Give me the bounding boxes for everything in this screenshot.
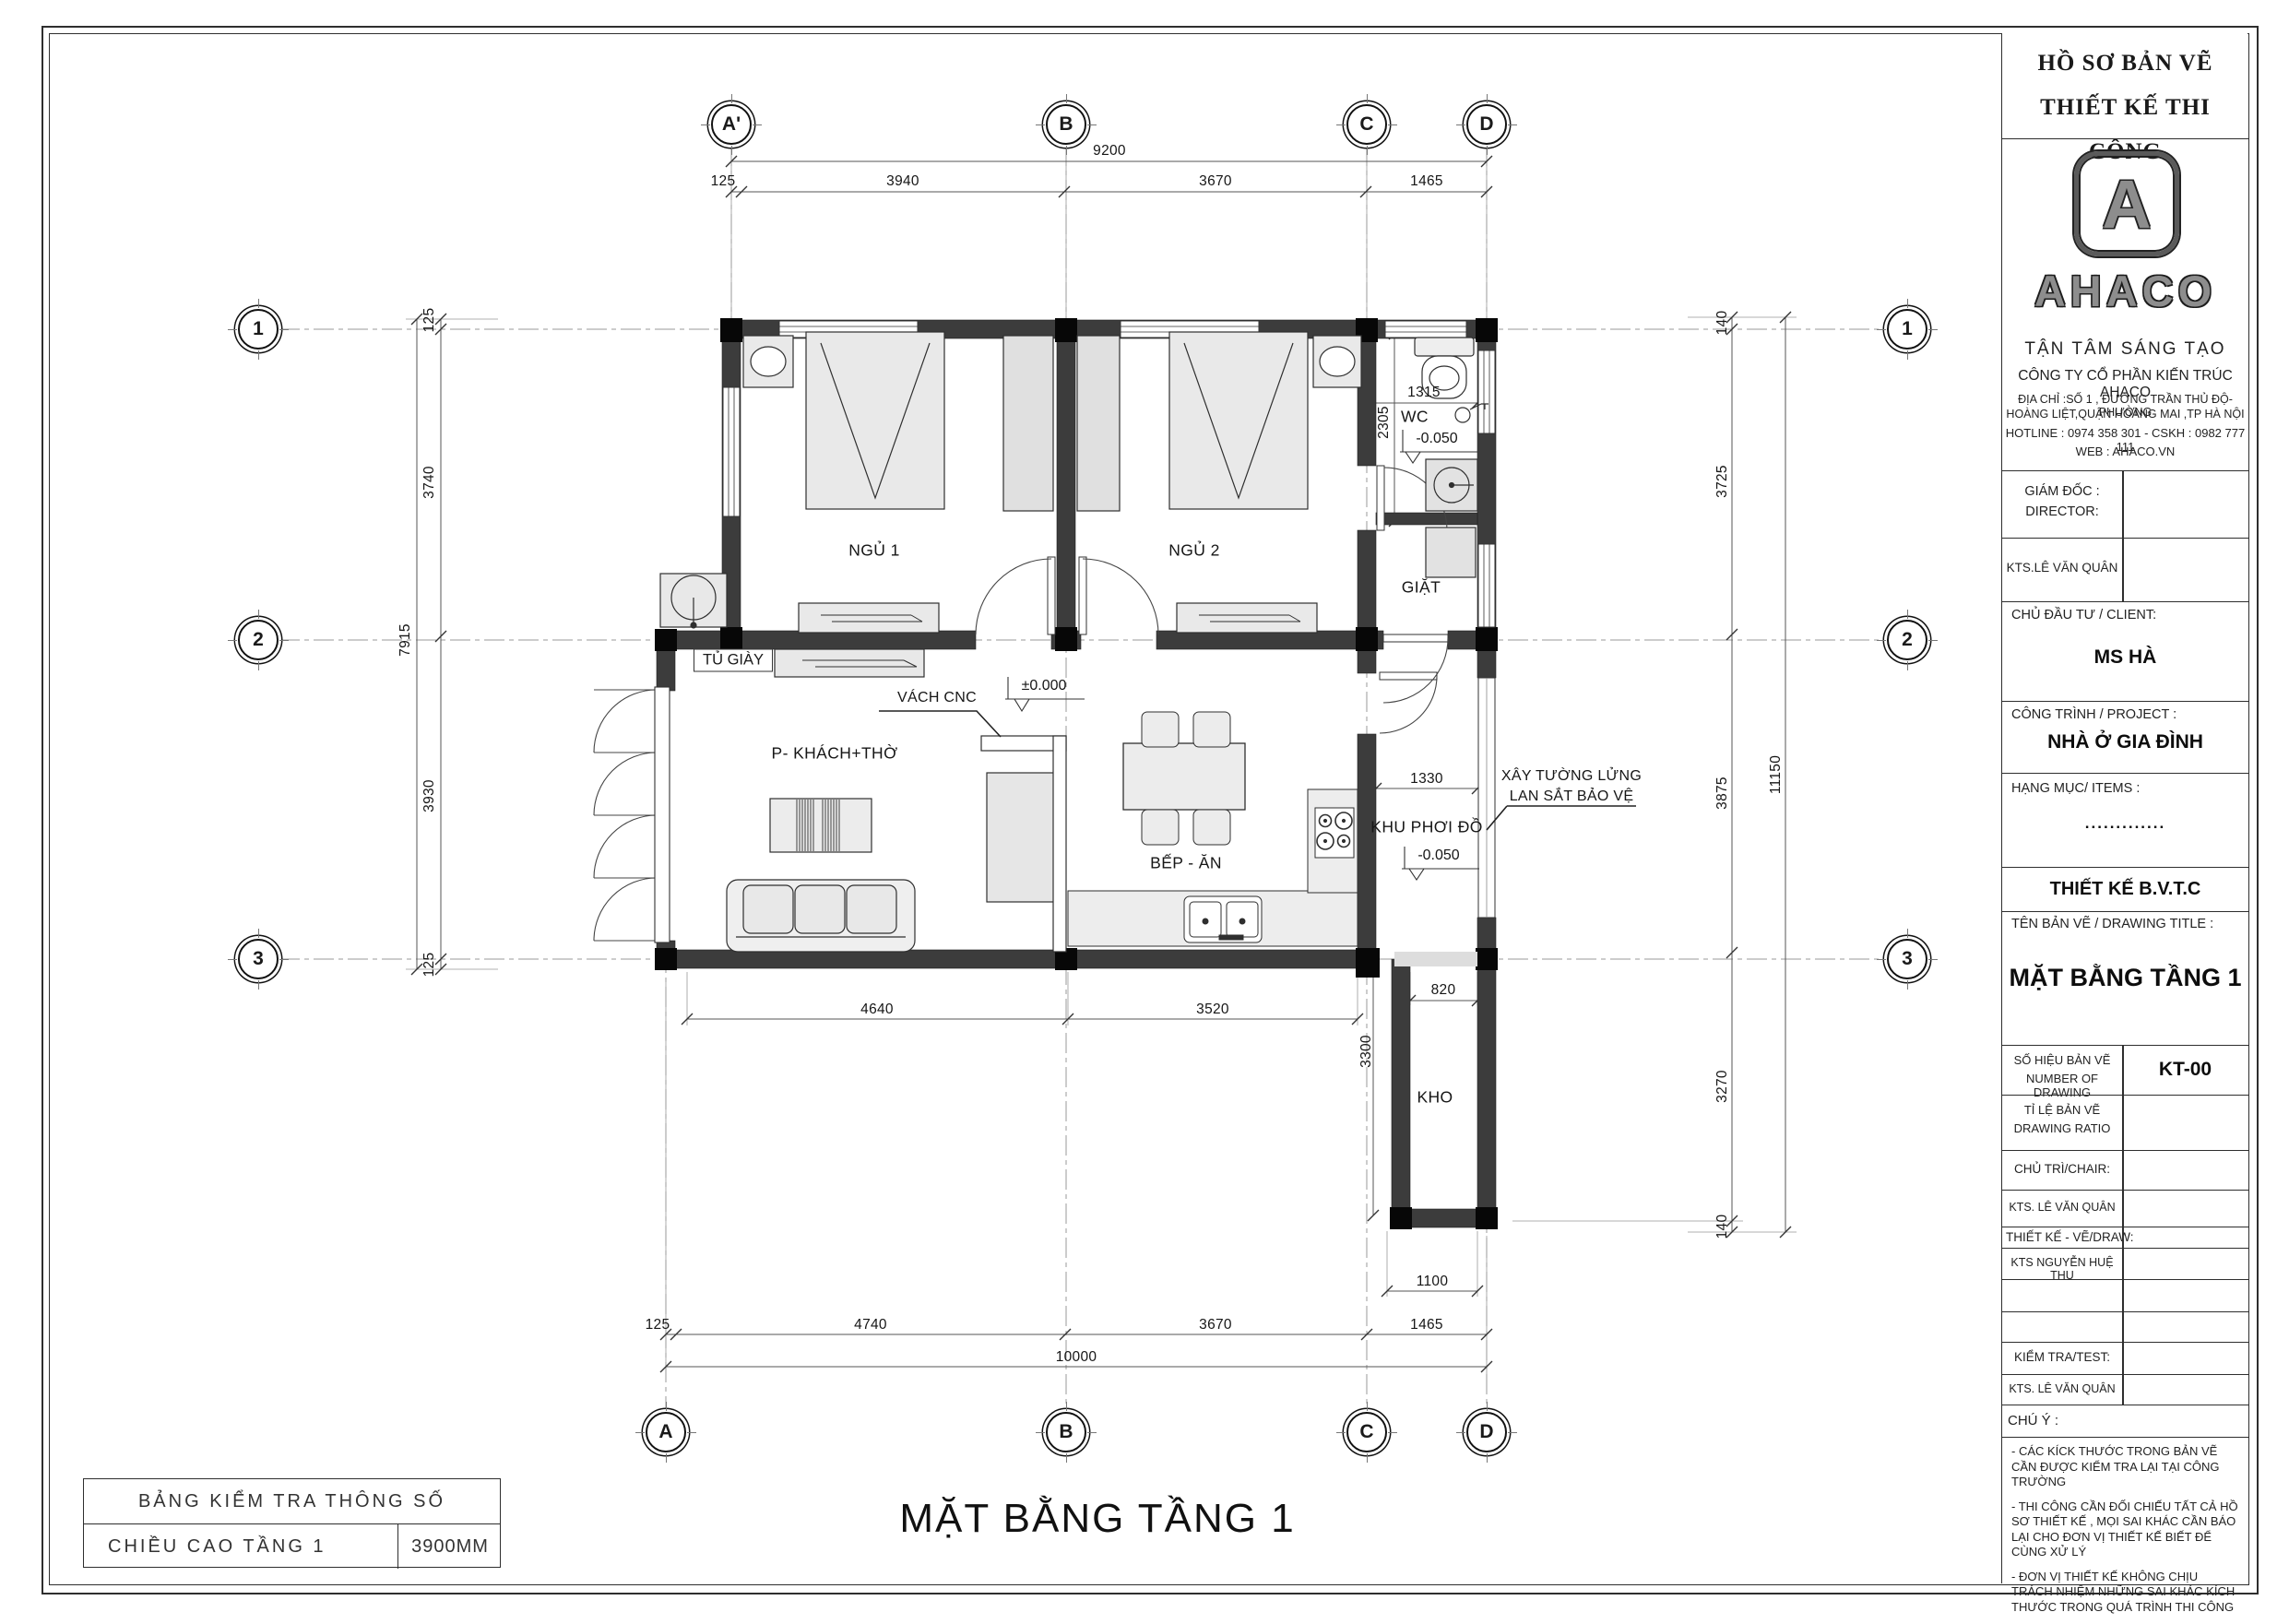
check-table-title: BẢNG KIỂM TRA THÔNG SỐ xyxy=(84,1479,500,1524)
design-stage: THIẾT KẾ B.V.T.C xyxy=(2002,879,2248,900)
items-label: HẠNG MỤC/ ITEMS : xyxy=(2011,781,2140,796)
kitchen-furniture xyxy=(1068,712,1477,966)
drawing-title: MẶT BẰNG TẦNG 1 xyxy=(2002,964,2248,992)
shoe-cabinet xyxy=(775,649,924,677)
draw-row: THIẾT KẾ - VẼ/DRAW: xyxy=(2002,1227,2248,1248)
divider xyxy=(2122,1096,2124,1151)
divider xyxy=(2122,1191,2124,1227)
check-table-row-label: CHIỀU CAO TẦNG 1 xyxy=(84,1524,397,1569)
washer xyxy=(1426,528,1476,577)
project-row: CÔNG TRÌNH / PROJECT : NHÀ Ở GIA ĐÌNH xyxy=(2002,701,2248,773)
divider xyxy=(2122,1151,2124,1191)
doc-heading-line1: HỒ SƠ BẢN VẼ xyxy=(2002,41,2248,86)
divider xyxy=(2122,1227,2124,1249)
client-row: CHỦ ĐẦU TƯ / CLIENT: MS HÀ xyxy=(2002,601,2248,701)
check-name: KTS. LÊ VĂN QUÂN xyxy=(2002,1382,2122,1395)
company-address2: HOÀNG LIỆT,QUẬN HOÀNG MAI ,TP HÀ NỘI xyxy=(2002,408,2248,421)
divider xyxy=(2122,1046,2124,1096)
note-1: - CÁC KÍCK THƯỚC TRONG BẢN VẼ CẦN ĐƯỢC K… xyxy=(2011,1444,2239,1490)
wardrobe-1 xyxy=(1003,336,1053,511)
empty-row xyxy=(2002,1279,2248,1311)
chair xyxy=(1193,810,1230,845)
brand-name: AHACO xyxy=(2002,266,2248,316)
kpd-threshold xyxy=(1394,952,1477,966)
shower-icon xyxy=(1455,408,1470,422)
number-value: KT-00 xyxy=(2122,1059,2248,1081)
shoe-cabinet-label: TỦ GIÀY xyxy=(694,649,773,672)
ratio-label2: DRAWING RATIO xyxy=(2002,1121,2122,1135)
project-label: CÔNG TRÌNH / PROJECT : xyxy=(2011,707,2176,722)
divider xyxy=(2122,1375,2124,1405)
note-2: - THI CÔNG CẦN ĐỐI CHIẾU TẤT CẢ HỒ SƠ TH… xyxy=(2011,1500,2239,1560)
drawing-main-title: MẶT BẰNG TẦNG 1 xyxy=(899,1496,1295,1542)
drawing-title-label: TÊN BẢN VẼ / DRAWING TITLE : xyxy=(2011,917,2213,931)
design-stage-row: THIẾT KẾ B.V.T.C xyxy=(2002,867,2248,911)
check-label: KIỂM TRA/TEST: xyxy=(2002,1350,2122,1364)
divider xyxy=(2122,1280,2124,1312)
chair-name: KTS. LÊ VĂN QUÂN xyxy=(2002,1201,2122,1214)
divider xyxy=(2122,1343,2124,1375)
chair xyxy=(1142,810,1179,845)
director-name: KTS.LÊ VĂN QUÂN xyxy=(2002,561,2122,575)
check-table-row-value: 3900MM xyxy=(397,1524,502,1569)
cnc-partition-wall xyxy=(1053,736,1066,952)
director-label: GIÁM ĐỐC : xyxy=(2002,484,2122,499)
dining-table xyxy=(1123,743,1245,810)
items-row: HẠNG MỤC/ ITEMS : ............. xyxy=(2002,773,2248,867)
dresser-2 xyxy=(1177,603,1317,633)
check-row: KIỂM TRA/TEST: xyxy=(2002,1342,2248,1374)
wardrobe-2 xyxy=(1077,336,1120,511)
notes-text: - CÁC KÍCK THƯỚC TRONG BẢN VẼ CẦN ĐƯỢC K… xyxy=(2011,1444,2239,1624)
altar-cabinet xyxy=(987,773,1057,902)
toilet-tank xyxy=(1415,338,1474,356)
parameter-check-table: BẢNG KIỂM TRA THÔNG SỐ CHIỀU CAO TẦNG 1 … xyxy=(83,1478,501,1568)
director-row: GIÁM ĐỐC : DIRECTOR: xyxy=(2002,470,2248,538)
bedroom2-furniture xyxy=(1077,332,1361,633)
empty-row xyxy=(2002,1311,2248,1342)
brand-slogan: TẬN TÂM SÁNG TẠO xyxy=(2002,339,2248,360)
director-label-en: DIRECTOR: xyxy=(2002,504,2122,519)
items-value: ............. xyxy=(2002,814,2248,833)
chair-row: CHỦ TRÌ/CHAIR: xyxy=(2002,1150,2248,1190)
stove xyxy=(1315,808,1354,858)
ratio-row: TỈ LỆ BẢN VẼ DRAWING RATIO xyxy=(2002,1095,2248,1150)
chair-label: CHỦ TRÌ/CHAIR: xyxy=(2002,1162,2122,1176)
note-label: CHÚ Ý : xyxy=(2008,1413,2058,1428)
divider xyxy=(2002,138,2248,139)
walls xyxy=(657,320,1496,1227)
tv-cabinet xyxy=(770,799,872,852)
note-3: - ĐƠN VỊ THIẾT KẾ KHÔNG CHỊU TRÁCH NHIỆM… xyxy=(2011,1570,2239,1616)
check-name-row: KTS. LÊ VĂN QUÂN xyxy=(2002,1374,2248,1405)
title-block: HỒ SƠ BẢN VẼ THIẾT KẾ THI CÔNG A AHACO T… xyxy=(2001,33,2247,1583)
director-name-row: KTS.LÊ VĂN QUÂN xyxy=(2002,538,2248,601)
drawing-sheet: { "page": { "main_title": "MẶT BẰNG TẦNG… xyxy=(0,0,2289,1618)
toilet-bowl xyxy=(1422,356,1466,398)
number-row: SỐ HIỆU BẢN VẼ NUMBER OF DRAWING KT-00 xyxy=(2002,1045,2248,1095)
logo-letter: A xyxy=(2102,165,2151,243)
ratio-label1: TỈ LỆ BẢN VẼ xyxy=(2002,1103,2122,1117)
dresser-1 xyxy=(799,603,939,633)
note-label-row: CHÚ Ý : xyxy=(2002,1405,2248,1437)
client-name: MS HÀ xyxy=(2002,646,2248,669)
floor-plan-drawing xyxy=(0,0,2289,1618)
number-label1: SỐ HIỆU BẢN VẼ xyxy=(2002,1053,2122,1067)
chair-name-row: KTS. LÊ VĂN QUÂN xyxy=(2002,1190,2248,1227)
client-label: CHỦ ĐẦU TƯ / CLIENT: xyxy=(2011,608,2156,622)
ahaco-logo-icon: A xyxy=(2074,151,2179,256)
divider xyxy=(2122,1312,2124,1343)
draw-name-row: KTS NGUYỄN HUỆ THU xyxy=(2002,1248,2248,1279)
company-web: WEB : AHACO.VN xyxy=(2002,445,2248,458)
folding-door xyxy=(594,687,670,942)
chair xyxy=(1193,712,1230,747)
draw-name: KTS NGUYỄN HUỆ THU xyxy=(2002,1256,2122,1282)
chair xyxy=(1142,712,1179,747)
draw-label: THIẾT KẾ - VẼ/DRAW: xyxy=(2006,1230,2134,1244)
project-name: NHÀ Ở GIA ĐÌNH xyxy=(2002,731,2248,753)
drawing-title-row: TÊN BẢN VẼ / DRAWING TITLE : MẶT BẰNG TẦ… xyxy=(2002,911,2248,1045)
divider xyxy=(2122,1249,2124,1280)
bedroom1-furniture xyxy=(743,332,1053,633)
